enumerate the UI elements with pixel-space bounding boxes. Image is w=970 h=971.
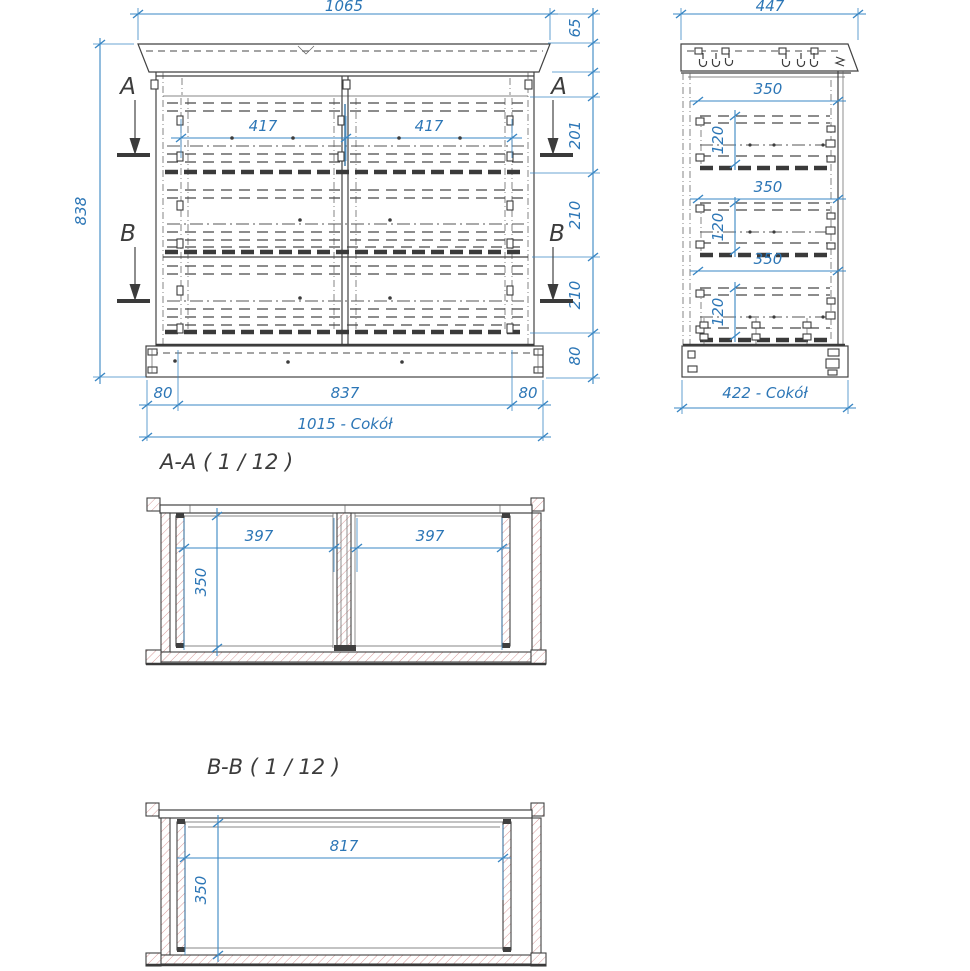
dim-drawer3-height: 210 — [566, 281, 584, 310]
dim-drawer3-box-height: 120 — [709, 298, 727, 327]
front-view-cabinet — [138, 44, 550, 377]
dim-drawer2-box-height: 120 — [709, 213, 727, 242]
drawer-side-left-bb — [177, 822, 185, 950]
dim-compartment-left: 397 — [245, 527, 274, 545]
section-aa: A-A ( 1 / 12 ) — [146, 450, 546, 664]
dim-drawer1-box-height: 120 — [709, 126, 727, 155]
back-panel — [160, 505, 532, 513]
dim-drawer-left: 417 — [249, 117, 278, 135]
section-bb-title: B-B ( 1 / 12 ) — [207, 755, 340, 779]
dim-height-total: 838 — [72, 197, 90, 226]
dim-compartment-depth-aa: 350 — [192, 568, 210, 597]
dim-depth-total: 447 — [756, 0, 785, 15]
front-rail — [160, 652, 532, 662]
dim-plinth-total: 1015 - Cokół — [298, 415, 394, 433]
section-bb-dimensions: 817 350 — [177, 815, 511, 962]
dim-plinth-height: 80 — [566, 346, 584, 365]
drawer-2-front — [163, 190, 528, 257]
side-wall-left — [161, 513, 170, 652]
front-view: 1065 838 417 417 — [72, 0, 600, 441]
dim-drawer3-depth: 350 — [754, 250, 783, 268]
dim-drawer2-height: 210 — [566, 201, 584, 230]
dim-crown-height: 65 — [566, 18, 584, 37]
dim-drawer1-height: 201 — [566, 121, 584, 150]
dim-drawer2-depth: 350 — [754, 178, 783, 196]
drawing-canvas: 1065 838 417 417 — [0, 0, 970, 971]
technical-drawing-sheet: 1065 838 417 417 — [0, 0, 970, 971]
side-wall-right-bb — [532, 818, 541, 955]
section-a-label-right: A — [549, 74, 567, 100]
dim-compartment-right: 397 — [416, 527, 445, 545]
dim-drawer-right: 417 — [415, 117, 444, 135]
section-a-label-left: A — [118, 74, 136, 100]
dim-plinth-depth: 422 - Cokół — [722, 384, 808, 402]
back-post-left — [147, 498, 160, 511]
dim-plinth-inner: 837 — [331, 384, 360, 402]
section-bb: B-B ( 1 / 12 ) 817 — [146, 755, 546, 966]
side-plinth — [682, 318, 848, 377]
section-b-label-left: B — [120, 221, 136, 247]
drawer-side-right — [502, 516, 510, 646]
dim-foot-right: 80 — [518, 384, 537, 402]
dim-compartment-depth-bb: 350 — [192, 876, 210, 905]
dim-compartment-width-bb: 817 — [330, 837, 359, 855]
dim-width-total: 1065 — [325, 0, 363, 15]
section-b-label-right: B — [549, 221, 565, 247]
front-rail-bb — [159, 955, 532, 964]
center-partition — [337, 513, 351, 650]
dim-drawer1-depth: 350 — [754, 80, 783, 98]
drawer-side-left — [176, 516, 184, 646]
side-wall-left-bb — [161, 818, 170, 955]
back-post-right — [531, 498, 544, 511]
crown-molding — [138, 44, 550, 72]
plinth — [146, 346, 543, 377]
drawer-3-front — [156, 266, 534, 345]
dim-foot-left: 80 — [153, 384, 172, 402]
front-post-left — [146, 650, 161, 664]
section-aa-title: A-A ( 1 / 12 ) — [158, 450, 293, 474]
drawer-side-right-bb — [503, 822, 511, 950]
side-crown — [681, 44, 858, 71]
back-panel-bb — [159, 810, 532, 818]
back-post-left-bb — [146, 803, 159, 816]
back-post-right-bb — [531, 803, 544, 816]
side-view: 447 350 350 350 120 120 120 422 — [673, 0, 866, 414]
front-post-right — [531, 650, 546, 664]
side-wall-right — [532, 513, 541, 652]
